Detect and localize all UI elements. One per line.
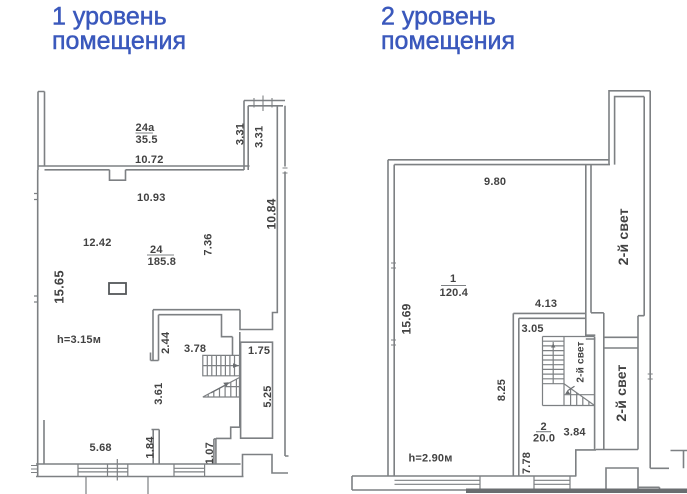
svg-text:1.07: 1.07 — [204, 442, 216, 464]
svg-text:4.13: 4.13 — [535, 298, 557, 310]
svg-text:h=2.90м: h=2.90м — [409, 453, 453, 465]
svg-text:8.25: 8.25 — [496, 379, 508, 401]
svg-text:10.72: 10.72 — [135, 154, 164, 166]
svg-text:1.75: 1.75 — [248, 345, 270, 357]
svg-text:5.68: 5.68 — [90, 442, 112, 454]
svg-text:2-й свет: 2-й свет — [576, 341, 587, 382]
svg-text:120.4: 120.4 — [440, 287, 469, 299]
svg-text:15.69: 15.69 — [399, 303, 413, 334]
svg-text:35.5: 35.5 — [136, 134, 158, 146]
svg-text:3.78: 3.78 — [184, 343, 206, 355]
svg-text:10.84: 10.84 — [265, 198, 279, 229]
svg-text:20.0: 20.0 — [533, 433, 555, 445]
svg-text:24а: 24а — [136, 122, 156, 134]
svg-text:15.65: 15.65 — [52, 270, 67, 304]
svg-text:7.78: 7.78 — [521, 452, 533, 474]
svg-text:3.31: 3.31 — [254, 126, 266, 148]
svg-text:2.44: 2.44 — [160, 331, 172, 354]
svg-text:1: 1 — [450, 273, 456, 285]
svg-text:12.42: 12.42 — [83, 237, 112, 249]
svg-text:2-й свет: 2-й свет — [615, 208, 631, 265]
svg-text:7.36: 7.36 — [202, 233, 214, 255]
svg-text:24: 24 — [150, 244, 163, 256]
svg-text:3.31: 3.31 — [235, 123, 247, 145]
svg-text:3.61: 3.61 — [153, 383, 165, 405]
svg-text:5.25: 5.25 — [262, 385, 274, 407]
svg-text:185.8: 185.8 — [148, 256, 177, 268]
svg-text:помещения: помещения — [52, 27, 186, 55]
svg-text:h=3.15м: h=3.15м — [57, 334, 101, 346]
svg-text:помещения: помещения — [381, 27, 515, 55]
svg-text:1.84: 1.84 — [145, 436, 157, 459]
svg-text:3.05: 3.05 — [522, 323, 544, 335]
svg-text:2-й свет: 2-й свет — [613, 364, 629, 421]
svg-text:10.93: 10.93 — [137, 192, 166, 204]
svg-text:3.84: 3.84 — [564, 427, 587, 439]
svg-text:9.80: 9.80 — [484, 176, 506, 188]
